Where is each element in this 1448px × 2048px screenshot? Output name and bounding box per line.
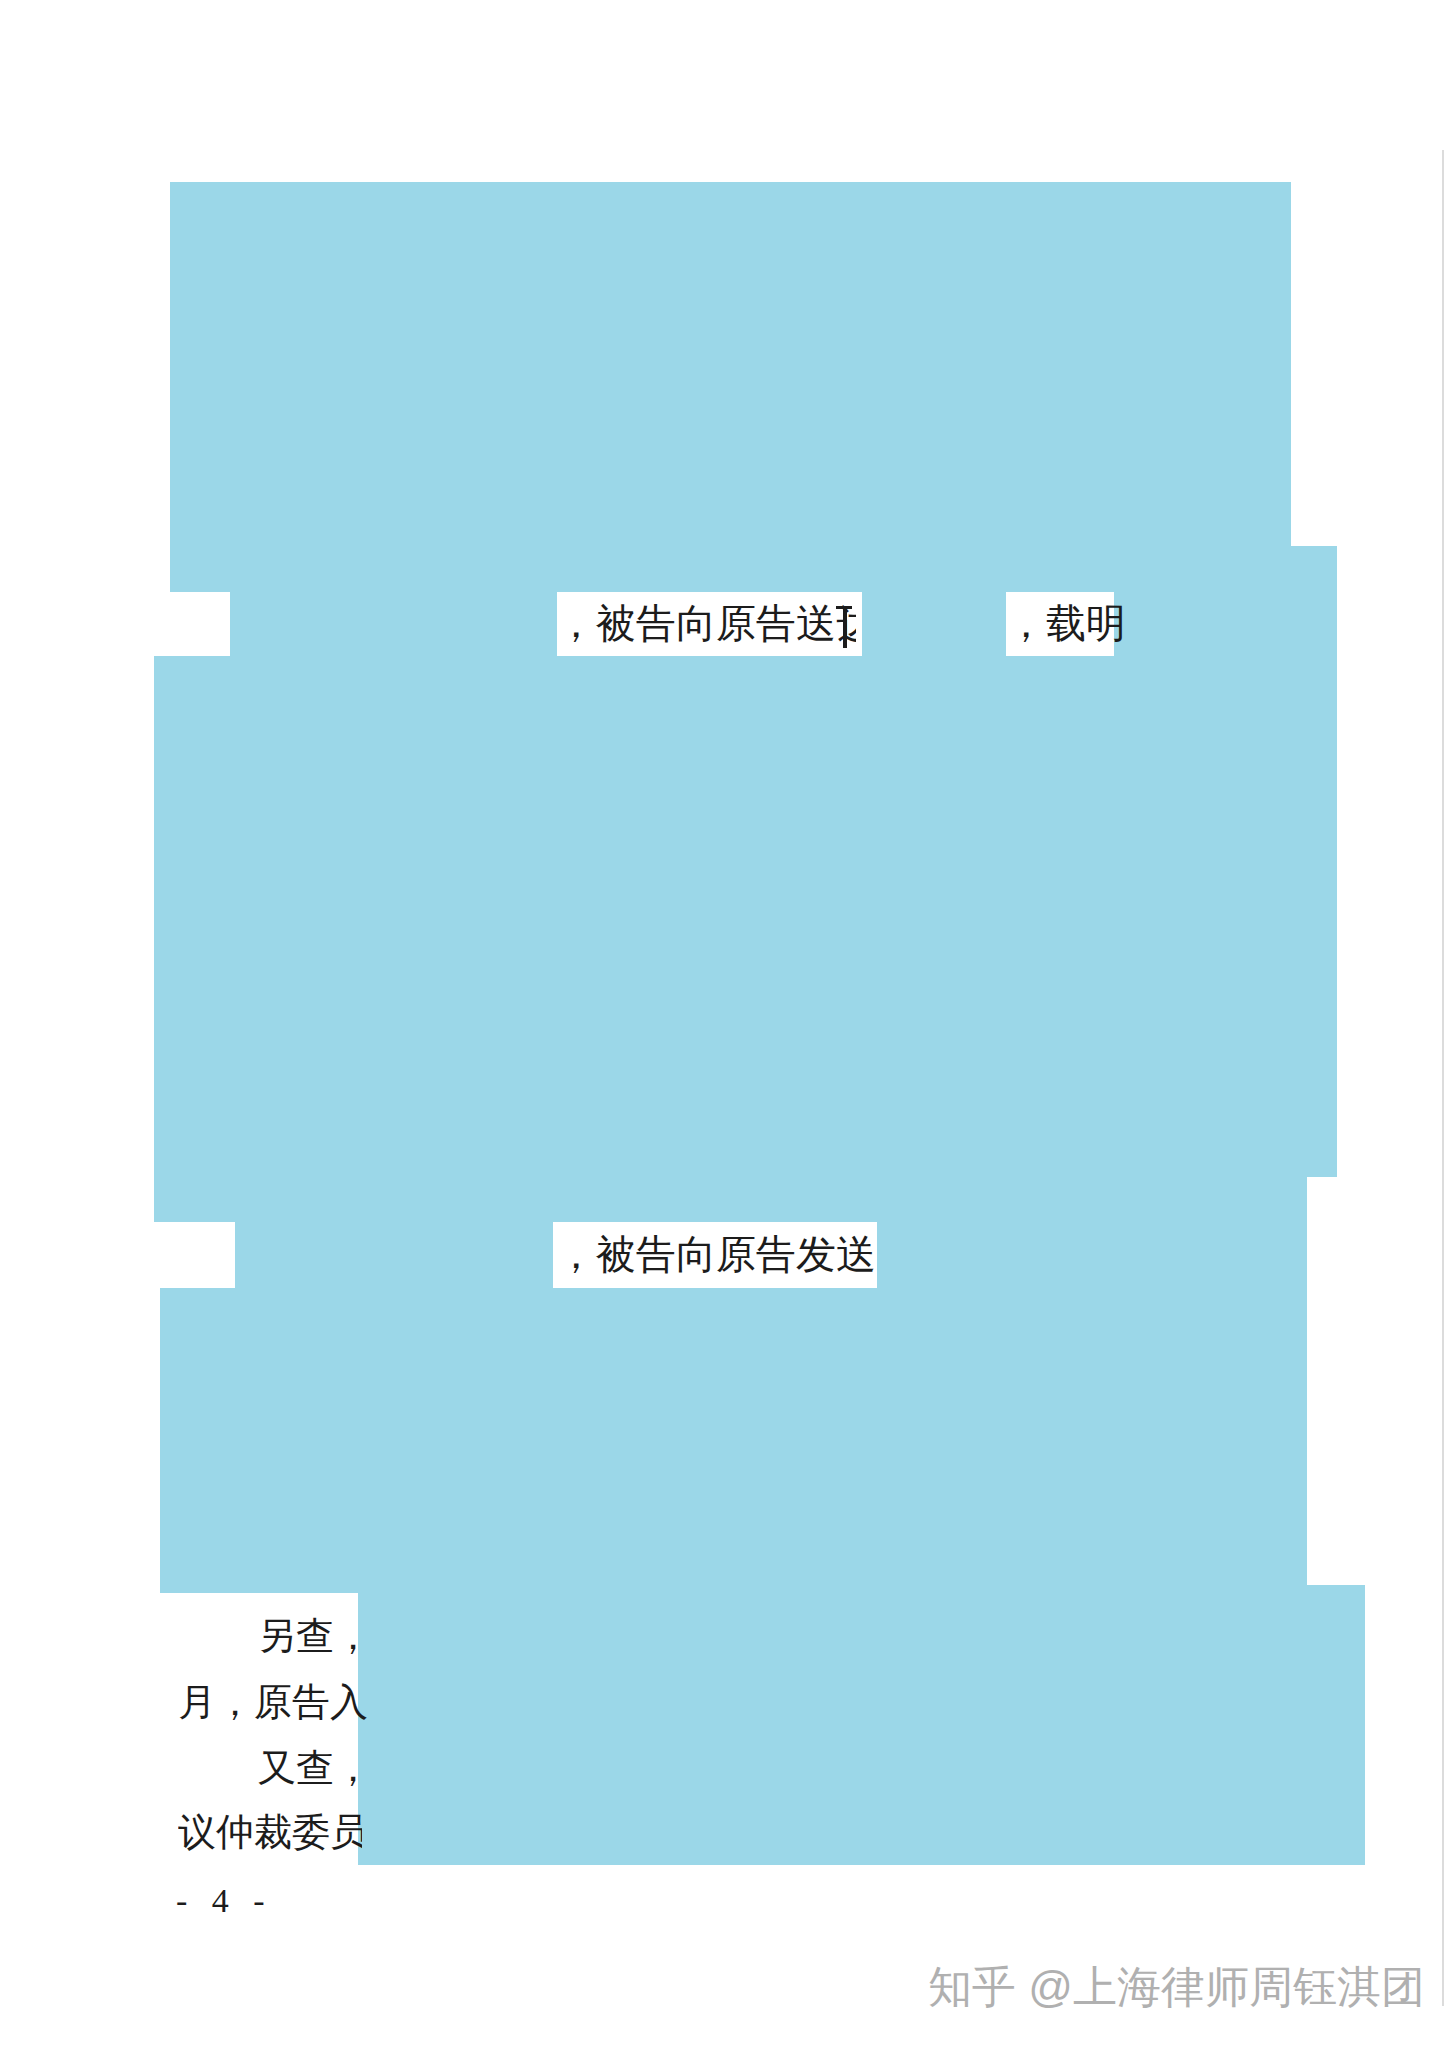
document-page: ，被告向原告送达 ，载明 ，被告向原告发送 另查， 月，原告入 又查， 议仲裁委… [0, 0, 1448, 2048]
partial-character-stroke [843, 608, 847, 648]
watermark: 知乎 @上海律师周钰淇团 [928, 1963, 1425, 2011]
redaction-block [154, 656, 1337, 1177]
redaction-block [160, 1585, 1365, 1593]
text-fragment-line2: ，被告向原告发送 [556, 1222, 878, 1288]
redaction-block [877, 1222, 1307, 1288]
page-edge-line [1442, 150, 1444, 2006]
redaction-block [230, 592, 557, 656]
redaction-block [160, 1288, 1307, 1585]
redaction-block [862, 592, 1006, 656]
redaction-block [1114, 592, 1337, 656]
paragraph-line-further-1: 又查， [258, 1744, 372, 1792]
page-number: - 4 - [176, 1882, 273, 1920]
redaction-block [358, 1593, 1365, 1865]
redaction-block [235, 1222, 553, 1288]
redaction-block [170, 546, 1337, 592]
paragraph-line-another-1: 另查， [258, 1612, 372, 1660]
paragraph-line-further-2: 议仲裁委员 [178, 1808, 362, 1856]
redaction-block [154, 1177, 1307, 1222]
paragraph-line-another-2: 月，原告入 [178, 1678, 368, 1726]
text-fragment-line1-left: ，被告向原告送达 [556, 592, 856, 656]
text-fragment-line1-right: ，载明 [1006, 592, 1146, 656]
redaction-block [170, 182, 1291, 546]
